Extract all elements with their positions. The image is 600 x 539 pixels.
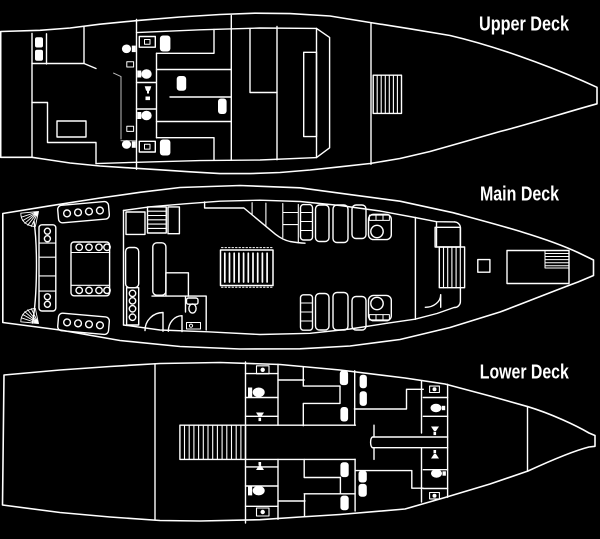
svg-text:Lower Deck: Lower Deck (480, 361, 569, 384)
svg-text:Main Deck: Main Deck (480, 183, 559, 206)
svg-text:Upper Deck: Upper Deck (479, 13, 569, 36)
